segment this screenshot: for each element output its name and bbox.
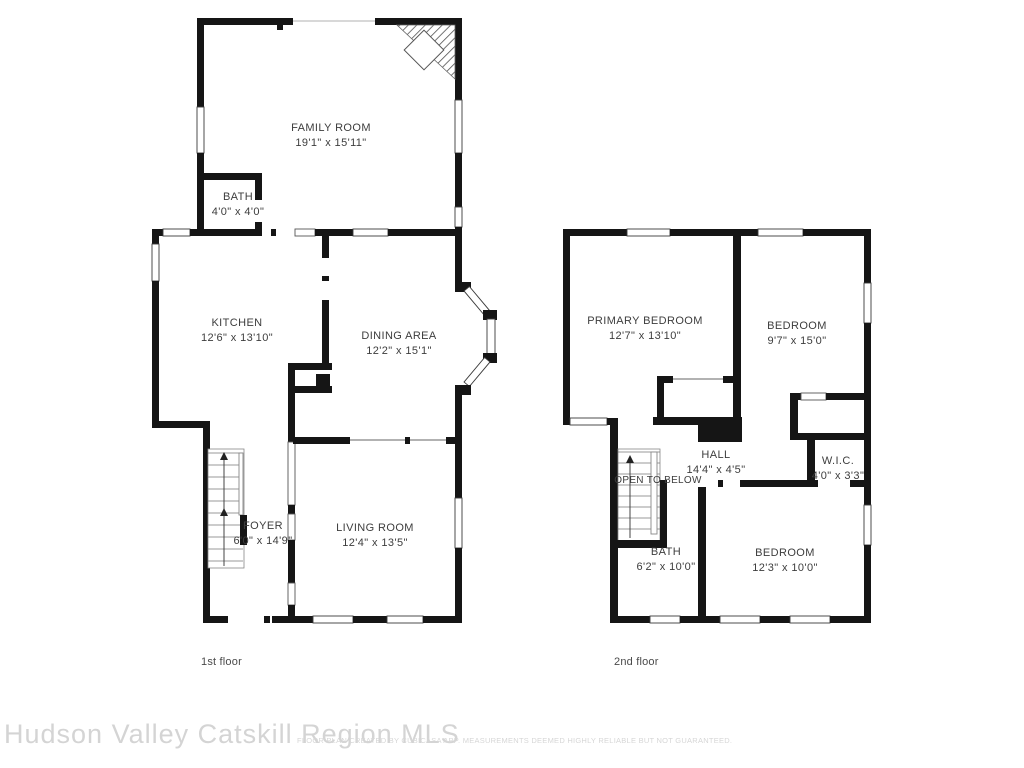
room-dims: 12'2" x 15'1" [361,344,436,359]
room-label-dining-area: DINING AREA 12'2" x 15'1" [361,329,436,359]
room-dims: 9'7" x 15'0" [767,334,827,349]
room-name: FAMILY ROOM [291,121,371,136]
room-name: PRIMARY BEDROOM [587,314,703,329]
floor-plan-page: FAMILY ROOM 19'1" x 15'11" BATH 4'0" x 4… [0,0,1024,768]
room-name: HALL [686,448,745,463]
bay-window [455,282,497,395]
first-floor-walls [152,18,462,623]
room-name: KITCHEN [201,316,273,331]
room-label-bedroom-3: BEDROOM 12'3" x 10'0" [752,546,818,576]
room-name: FOYER [233,519,292,534]
mls-watermark: Hudson Valley Catskill Region MLS [4,719,460,750]
room-label-foyer: FOYER 6'0" x 14'9" [233,519,292,549]
room-name: W.I.C. [812,454,865,469]
room-name: OPEN TO BELOW [614,475,701,486]
room-dims: 6'0" x 14'9" [233,534,292,549]
room-label-hall: HALL 14'4" x 4'5" [686,448,745,478]
cubicasa-disclaimer: FLOOR PLAN CREATED BY CUBICASA APP. MEAS… [297,736,732,745]
room-dims: 12'7" x 13'10" [587,329,703,344]
room-name: BEDROOM [767,319,827,334]
room-name: LIVING ROOM [336,521,414,536]
room-label-bath-1: BATH 4'0" x 4'0" [212,190,265,220]
room-dims: 12'3" x 10'0" [752,561,818,576]
room-dims: 12'4" x 13'5" [336,536,414,551]
room-dims: 19'1" x 15'11" [291,136,371,151]
second-floor-stairs [610,449,667,548]
room-dims: 4'0" x 3'3" [812,469,865,484]
room-label-open-to-below: OPEN TO BELOW [614,475,701,486]
room-label-family-room: FAMILY ROOM 19'1" x 15'11" [291,121,371,151]
room-name: BATH [212,190,265,205]
room-label-primary-bedroom: PRIMARY BEDROOM 12'7" x 13'10" [587,314,703,344]
room-name: DINING AREA [361,329,436,344]
first-floor-stairs [208,449,247,568]
room-label-bedroom-2: BEDROOM 9'7" x 15'0" [767,319,827,349]
room-name: BATH [636,545,695,560]
room-label-wic: W.I.C. 4'0" x 3'3" [812,454,865,484]
room-dims: 4'0" x 4'0" [212,205,265,220]
second-floor-walls [563,229,871,623]
room-name: BEDROOM [752,546,818,561]
room-label-bath-2: BATH 6'2" x 10'0" [636,545,695,575]
floor-plan-drawing [0,0,1024,768]
second-floor-caption: 2nd floor [614,656,659,668]
room-label-living-room: LIVING ROOM 12'4" x 13'5" [336,521,414,551]
fireplace [397,25,455,79]
room-dims: 6'2" x 10'0" [636,560,695,575]
room-dims: 12'6" x 13'10" [201,331,273,346]
room-label-kitchen: KITCHEN 12'6" x 13'10" [201,316,273,346]
first-floor-caption: 1st floor [201,656,242,668]
